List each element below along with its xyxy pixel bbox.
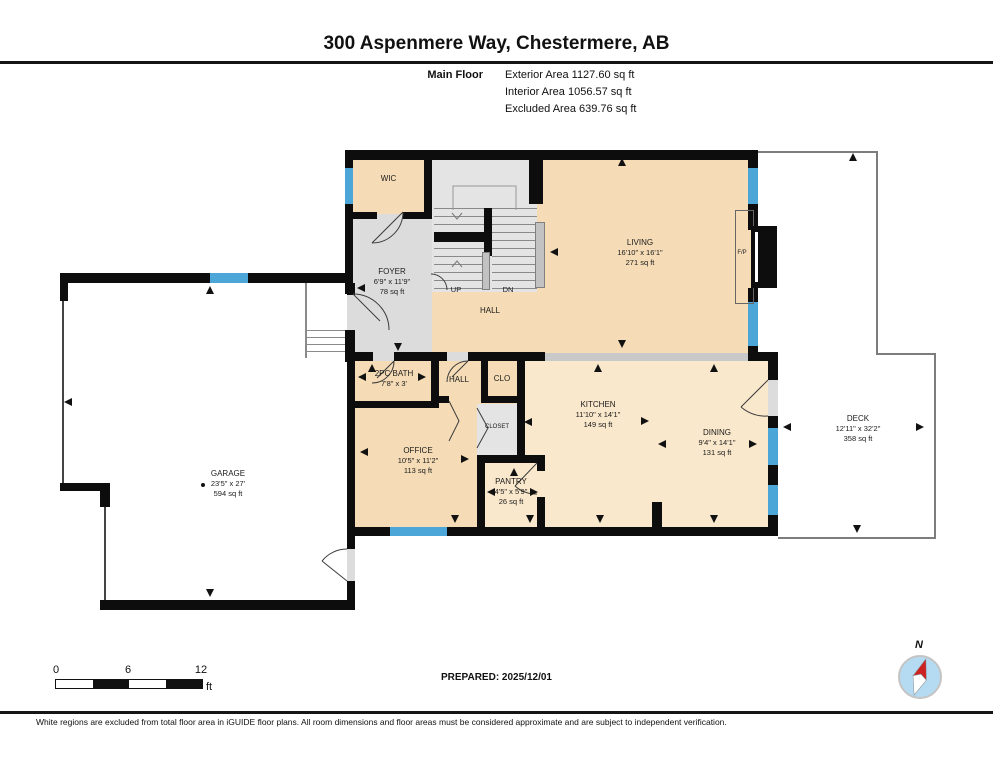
up-arrow (849, 153, 857, 161)
floor-plan-page: 300 Aspenmere Way, Chestermere, AB Main … (0, 0, 993, 768)
interior-area: Interior Area 1056.57 sq ft (505, 86, 632, 98)
stair-label-dn: DN (495, 285, 521, 295)
scale-unit: ft (206, 681, 212, 693)
stair-newel-post (535, 222, 545, 288)
up-arrow (594, 364, 602, 372)
right-arrow (461, 455, 469, 463)
floor-label: Main Floor (380, 69, 483, 81)
wall (768, 361, 778, 380)
wall (537, 455, 545, 471)
left-arrow (550, 248, 558, 256)
wall (477, 455, 545, 463)
door-arc (322, 549, 347, 561)
right-arrow (749, 440, 757, 448)
wall (355, 401, 439, 408)
deck-edge (758, 151, 878, 153)
down-arrow (206, 589, 214, 597)
stair-newel-post (482, 252, 490, 290)
half-wall (543, 353, 748, 361)
right-arrow (916, 423, 924, 431)
window (768, 428, 778, 465)
wall (347, 581, 355, 608)
page-title: 300 Aspenmere Way, Chestermere, AB (0, 33, 993, 55)
down-arrow (394, 343, 402, 351)
left-arrow (360, 448, 368, 456)
deck-edge (934, 353, 936, 539)
window (748, 168, 758, 204)
compass-icon (896, 653, 944, 701)
stair-label-up: UP (443, 285, 469, 295)
wall (768, 515, 778, 536)
wall (437, 396, 449, 403)
wall (347, 527, 355, 549)
scale-bar-segment (56, 680, 93, 688)
left-arrow (524, 418, 532, 426)
stair-treads-up (434, 208, 484, 292)
scale-tick-0: 0 (50, 664, 62, 676)
down-arrow (596, 515, 604, 523)
right-arrow (641, 417, 649, 425)
right-arrow (530, 488, 538, 496)
entry-steps (306, 330, 347, 358)
up-arrow (206, 286, 214, 294)
wall (345, 150, 758, 160)
down-arrow (526, 515, 534, 523)
stair-treads-down (492, 208, 537, 292)
up-arrow (710, 364, 718, 372)
wall (529, 160, 543, 204)
deck-edge (876, 151, 878, 355)
wall (345, 150, 353, 170)
walkway-edge (305, 283, 307, 358)
scale-bar (55, 679, 203, 689)
scale-bar-segment (166, 680, 203, 688)
window (748, 302, 758, 346)
deck-edge (778, 537, 936, 539)
left-arrow (783, 423, 791, 431)
down-arrow (451, 515, 459, 523)
left-arrow (658, 440, 666, 448)
right-arrow (418, 373, 426, 381)
left-arrow (357, 284, 365, 292)
wall (347, 330, 355, 361)
fireplace-label: F/P (731, 250, 753, 257)
room-label-dining: DINING 9'4" x 14'1" 131 sq ft (676, 428, 758, 458)
wall (768, 465, 778, 485)
room-label-hall-small: HALL (436, 375, 482, 385)
wall (60, 273, 68, 301)
wall (100, 483, 110, 507)
wall (60, 273, 350, 283)
room-label-clo: CLO (486, 374, 518, 384)
room-label-deck: DECK 12'11" x 32'2" 358 sq ft (814, 414, 902, 444)
down-arrow (618, 340, 626, 348)
scale-bar-segment (93, 680, 130, 688)
room-label-garage: GARAGE 23'5" x 27' 594 sq ft (180, 469, 276, 499)
garage-door-gap (347, 549, 355, 582)
area-reference-dot (201, 483, 205, 487)
exterior-area: Exterior Area 1127.60 sq ft (505, 69, 634, 81)
wall (347, 361, 355, 527)
hall-door-gap (447, 352, 468, 361)
up-arrow (510, 468, 518, 476)
room-label-hall: HALL (455, 306, 525, 316)
wall (100, 600, 355, 610)
room-label-living: LIVING 16'10" x 16'1" 271 sq ft (565, 238, 715, 268)
window (210, 273, 248, 283)
stair-mid-wall (434, 232, 486, 242)
window (345, 168, 353, 204)
deck-door-gap (768, 379, 778, 417)
wall (748, 352, 778, 361)
window (768, 485, 778, 515)
up-arrow (368, 364, 376, 372)
fireplace-glass (755, 232, 758, 282)
down-arrow (853, 525, 861, 533)
room-label-office: OFFICE 10'5" x 11'2" 113 sq ft (368, 446, 468, 476)
wall (481, 396, 517, 403)
prepared-date: PREPARED: 2025/12/01 (350, 672, 643, 683)
wall (748, 150, 758, 168)
wall (104, 507, 106, 602)
room-label-foyer: FOYER 6'9" x 11'9" 78 sq ft (352, 267, 432, 297)
wall (394, 352, 447, 361)
bath-door-gap (373, 352, 394, 361)
window (390, 527, 447, 536)
disclaimer-text: White regions are excluded from total fl… (36, 717, 966, 727)
room-label-kitchen: KITCHEN 11'10" x 14'1" 149 sq ft (538, 400, 658, 430)
wall (424, 160, 432, 219)
wall (62, 301, 64, 485)
wall (517, 361, 525, 462)
wall (468, 352, 545, 361)
door-leaf (322, 561, 347, 581)
deck-edge (876, 353, 936, 355)
excluded-area: Excluded Area 639.76 sq ft (505, 103, 636, 115)
scale-tick-6: 6 (122, 664, 134, 676)
up-arrow (618, 158, 626, 166)
header-divider (0, 61, 993, 64)
scale-tick-12: 12 (193, 664, 209, 676)
footer-divider (0, 711, 993, 714)
left-arrow (64, 398, 72, 406)
room-label-closet: CLOSET (477, 424, 517, 431)
left-arrow (487, 488, 495, 496)
left-arrow (358, 373, 366, 381)
wall (768, 416, 778, 428)
room-label-wic: WIC (353, 174, 424, 184)
wall (652, 502, 662, 527)
entry-door-gap (347, 295, 355, 330)
compass-north-label: N (915, 639, 923, 651)
down-arrow (710, 515, 718, 523)
scale-bar-segment (129, 680, 166, 688)
